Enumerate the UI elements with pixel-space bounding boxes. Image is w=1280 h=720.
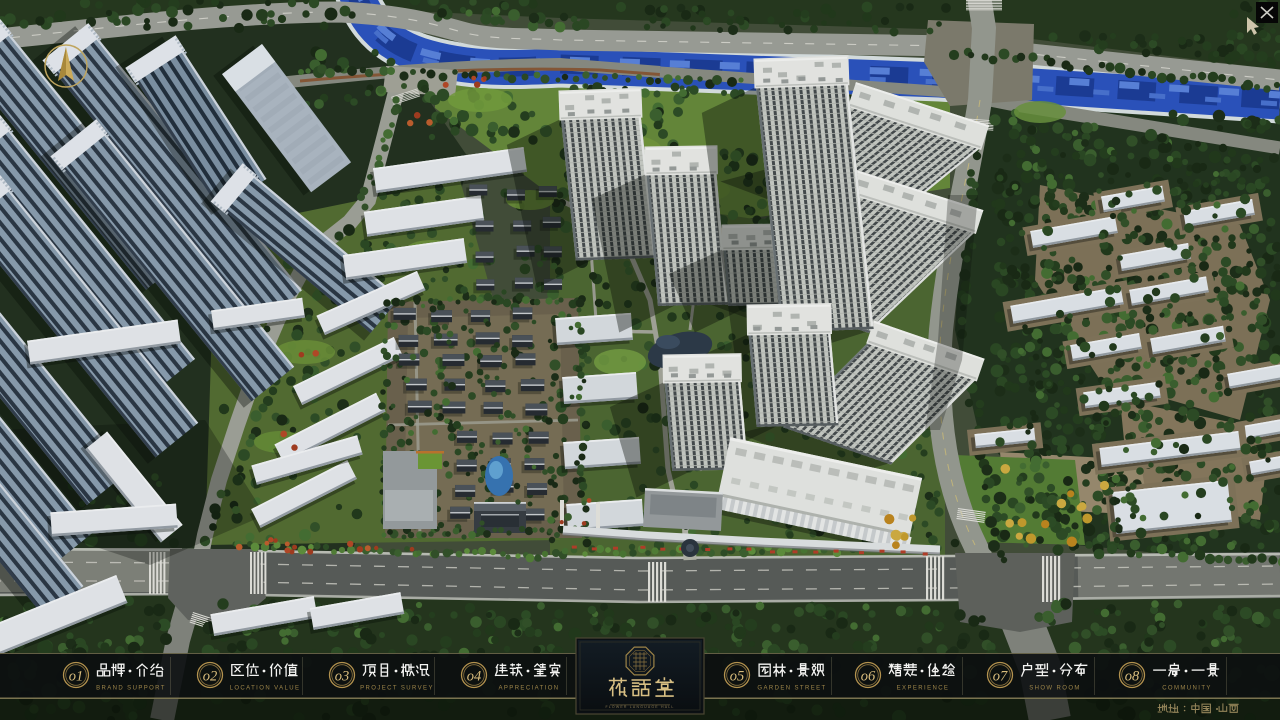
- svg-text:o6: o6: [861, 669, 876, 685]
- svg-text:o7: o7: [993, 669, 1008, 685]
- svg-text:BRAND SUPPORT: BRAND SUPPORT: [96, 686, 166, 692]
- svg-text:o5: o5: [730, 669, 745, 685]
- svg-text:o3: o3: [335, 669, 350, 685]
- svg-text:SHOW ROOM: SHOW ROOM: [1029, 686, 1081, 692]
- svg-text:FLOWER LANGUAGE HALL: FLOWER LANGUAGE HALL: [605, 705, 674, 709]
- svg-text:COMMUNITY: COMMUNITY: [1162, 686, 1212, 692]
- svg-text:EXPERIENCE: EXPERIENCE: [897, 686, 950, 692]
- svg-text:o4: o4: [467, 669, 482, 685]
- svg-text:o1: o1: [69, 669, 84, 685]
- svg-text:PROJECT SURVEY: PROJECT SURVEY: [360, 686, 434, 692]
- svg-text:LOCATION VALUE: LOCATION VALUE: [230, 686, 301, 692]
- svg-text:o8: o8: [1125, 669, 1140, 685]
- svg-text:APPRECIATION: APPRECIATION: [498, 686, 559, 692]
- svg-text:o2: o2: [203, 669, 218, 685]
- svg-text:GARDEN STREET: GARDEN STREET: [757, 686, 826, 692]
